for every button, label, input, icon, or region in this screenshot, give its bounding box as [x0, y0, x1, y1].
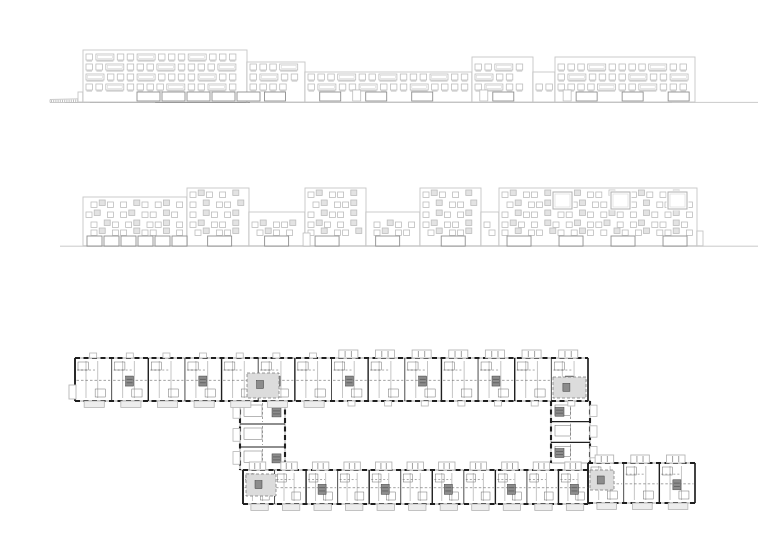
drawing-svg — [0, 0, 780, 552]
architectural-sheet — [0, 0, 780, 552]
upper-elevation — [50, 50, 758, 103]
lower-elevation — [60, 188, 758, 246]
ground-floor-plan — [69, 350, 695, 511]
